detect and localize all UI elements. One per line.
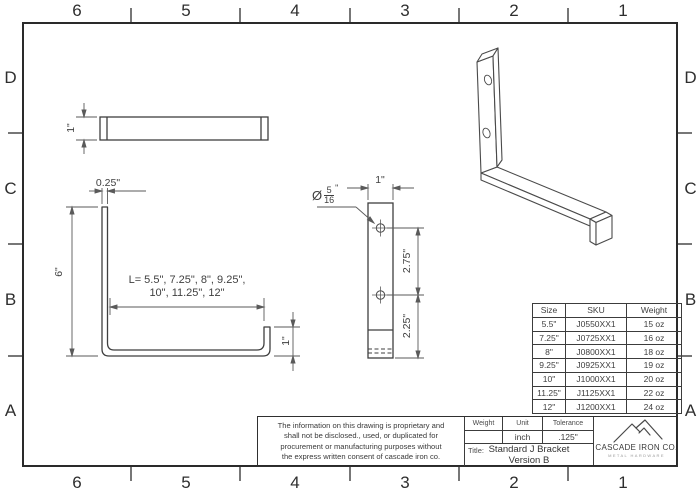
zone-col-label: 1 [608,472,638,493]
sku-cell: J0550XX1 [566,317,627,331]
zone-row-label: C [0,178,21,200]
notice-line: shall not be disclosed., used, or duplic… [284,431,438,441]
top-view-width-dim: 1" [63,118,79,138]
size-cell: 10" [533,372,566,386]
drawing-title: Standard J Bracket Version B [465,445,593,466]
zone-col-label: 3 [390,472,420,493]
weight-cell: 15 oz [627,317,682,331]
top-view [100,117,268,140]
weight-cell: 16 oz [627,331,682,345]
table-row: 11.25"J1125XX122 oz [533,386,682,400]
size-cell: 8" [533,345,566,359]
size-table: Size SKU Weight 5.5"J0550XX115 oz 7.25"J… [532,303,682,414]
length-note-line2: 10", 11.25", 12" [102,287,272,300]
zone-col-label: 2 [499,0,529,21]
zone-row-label: D [680,67,700,89]
size-cell: 11.25" [533,386,566,400]
hole-diameter-callout: Ø 5 16 " [312,183,338,207]
front-view-hole-bottom-dim: 2.25" [399,311,415,341]
col-header-size: Size [533,304,566,318]
company-tagline: METAL HARDWARE [608,453,665,458]
table-row: 10"J1000XX120 oz [533,372,682,386]
sku-cell: J0800XX1 [566,345,627,359]
side-view-height-dim: 6" [51,262,67,282]
size-cell: 7.25" [533,331,566,345]
diameter-symbol: Ø [312,188,322,203]
zone-col-label: 1 [608,0,638,21]
table-row: 9.25"J0925XX119 oz [533,359,682,373]
unit-value: inch [503,431,543,444]
tolerance-header: Tolerance [543,417,594,431]
length-note-line1: L= 5.5", 7.25", 8", 9.25", [102,274,272,287]
size-cell: 5.5" [533,317,566,331]
zone-row-label: B [0,289,21,311]
side-view-length-note: L= 5.5", 7.25", 8", 9.25", 10", 11.25", … [102,274,272,300]
front-view-holes [372,220,389,304]
weight-value [465,431,503,444]
unit-header: Unit [503,417,543,431]
company-name: CASCADE IRON CO. [595,443,677,452]
sku-cell: J1125XX1 [566,386,627,400]
fraction-numerator: 5 [327,186,332,195]
zone-row-label: D [0,67,21,89]
weight-cell: 18 oz [627,345,682,359]
zone-col-label: 6 [62,0,92,21]
col-header-sku: SKU [566,304,627,318]
zone-col-label: 4 [280,472,310,493]
isometric-view [477,48,612,245]
zone-row-label: A [680,400,700,422]
sku-cell: J0725XX1 [566,331,627,345]
table-row: 5.5"J0550XX115 oz [533,317,682,331]
side-view-thickness-dim: 0.25" [88,175,128,190]
sku-cell: J1200XX1 [566,400,627,414]
weight-cell: 20 oz [627,372,682,386]
zone-row-label: B [680,289,700,311]
mountain-logo-icon [606,417,668,443]
fraction: 5 16 [324,186,334,205]
title-block: The information on this drawing is propr… [257,416,678,467]
zone-row-label: C [680,178,700,200]
weight-cell: 19 oz [627,359,682,373]
zone-col-label: 5 [171,0,201,21]
drawing-title-cell: Title: Standard J Bracket Version B [465,444,594,465]
tolerance-value: .125" [543,431,594,444]
weight-cell: 24 oz [627,400,682,414]
front-view-hole-spacing-dim: 2.75" [399,246,415,276]
zone-col-label: 5 [171,472,201,493]
inch-mark: " [335,183,338,193]
sku-cell: J1000XX1 [566,372,627,386]
zone-col-label: 6 [62,472,92,493]
zone-row-label: A [0,400,21,422]
size-table-header-row: Size SKU Weight [533,304,682,318]
size-cell: 12" [533,400,566,414]
notice-line: procurement or manufacturing purposes wi… [280,442,441,452]
side-view-lip-dim: 1" [278,331,294,351]
table-row: 12"J1200XX124 oz [533,400,682,414]
weight-header: Weight [465,417,503,431]
notice-line: The information on this drawing is propr… [278,421,445,431]
top-view-dims [76,103,97,154]
front-view-width-dim: 1" [365,172,395,187]
sku-cell: J0925XX1 [566,359,627,373]
proprietary-notice: The information on this drawing is propr… [258,417,465,466]
zone-col-label: 4 [280,0,310,21]
title-line2: Version B [465,456,593,467]
company-logo: CASCADE IRON CO. METAL HARDWARE [594,417,679,466]
table-row: 7.25"J0725XX116 oz [533,331,682,345]
size-cell: 9.25" [533,359,566,373]
title-line1: Standard J Bracket [465,445,593,456]
zone-col-label: 2 [499,472,529,493]
notice-line: the express written consent of cascade i… [282,452,440,462]
col-header-weight: Weight [627,304,682,318]
zone-col-label: 3 [390,0,420,21]
weight-cell: 22 oz [627,386,682,400]
fraction-denominator: 16 [324,195,334,205]
drawing-sheet: 6 5 4 3 2 1 6 5 4 3 2 1 D C B A D C B A … [0,0,700,495]
table-row: 8"J0800XX118 oz [533,345,682,359]
